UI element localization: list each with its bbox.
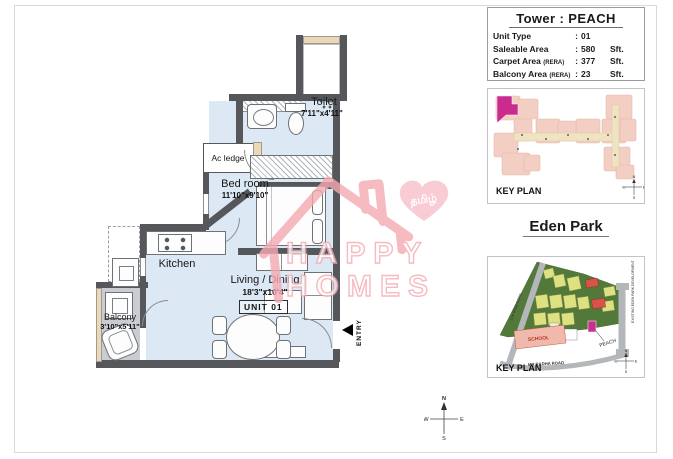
tower-info-box: Tower : PEACH Unit Type : 01 Saleable Ar… [487, 7, 645, 81]
dining-chair [212, 316, 227, 335]
svg-text:E: E [643, 186, 644, 190]
wall [296, 35, 303, 101]
dining-table [226, 314, 280, 360]
utility-sink [112, 258, 139, 287]
floor-plan-sheet: Ac ledge Toilet 7'11"x4'11" [0, 0, 673, 459]
happy-homes-watermark: தமிழ் HAPPY HOMES [250, 163, 462, 303]
watermark-line1: HAPPY [286, 237, 429, 270]
toilet-dims: 7'11"x4'11" [288, 109, 356, 118]
entry-label: ENTRY [356, 316, 363, 346]
wall [140, 224, 206, 231]
window [140, 258, 146, 276]
svg-text:W: W [424, 417, 429, 423]
kitchen-label: Kitchen [148, 258, 206, 270]
key-plan-box: KEY PLAN N S W E [487, 88, 645, 204]
svg-text:W: W [622, 186, 626, 190]
shaft-ledge [303, 36, 340, 44]
tower-info-rows: Unit Type : 01 Saleable Area : 580 Sft. … [493, 31, 640, 81]
tower-title: Tower : PEACH [488, 11, 644, 28]
wall [340, 35, 347, 101]
peach-tower [588, 321, 596, 332]
eden-park-title: Eden Park [487, 218, 645, 237]
eden-park-map-box: SCHOOL PEACH 12M WIDE ROAD MR RADHA ROAD… [487, 256, 645, 378]
svg-text:W: W [614, 360, 618, 364]
right-note-label: EXISTING EDEN PARK DEVELOPMENT [631, 260, 635, 323]
svg-text:N: N [442, 396, 446, 402]
key-plan-label: KEY PLAN [496, 186, 541, 196]
info-row: Carpet Area (RERA) : 377 Sft. [493, 56, 640, 69]
stove [158, 234, 192, 252]
svg-text:N: N [633, 175, 636, 179]
shaft-interior [303, 44, 340, 100]
watermark-line2: HOMES [286, 270, 436, 303]
svg-text:E: E [460, 417, 464, 423]
balcony-dims: 3'10"x5'11" [88, 322, 152, 331]
wall [96, 360, 339, 368]
dining-chair [276, 316, 291, 335]
svg-text:S: S [442, 436, 446, 442]
svg-text:S: S [633, 196, 636, 200]
toilet-label: Toilet [296, 96, 352, 108]
compass-icon: N S W E [424, 394, 464, 442]
washbasin [247, 104, 277, 129]
info-row: Unit Type : 01 [493, 31, 640, 44]
site-map: SCHOOL PEACH 12M WIDE ROAD MR RADHA ROAD… [488, 257, 644, 377]
wall [236, 94, 243, 148]
svg-text:E: E [635, 360, 638, 364]
dining-chair [276, 340, 291, 359]
info-row: Saleable Area : 580 Sft. [493, 44, 640, 57]
svg-text:N: N [625, 349, 628, 353]
key-plan-label: KEY PLAN [496, 363, 541, 373]
svg-text:S: S [625, 370, 628, 374]
tower-footprint: KEY PLAN N S W E [488, 89, 644, 203]
peach-label: PEACH [599, 338, 618, 349]
info-row: Balcony Area (RERA) : 23 Sft. [493, 69, 640, 82]
dining-chair [212, 340, 227, 359]
entry-arrow-icon [342, 324, 353, 336]
